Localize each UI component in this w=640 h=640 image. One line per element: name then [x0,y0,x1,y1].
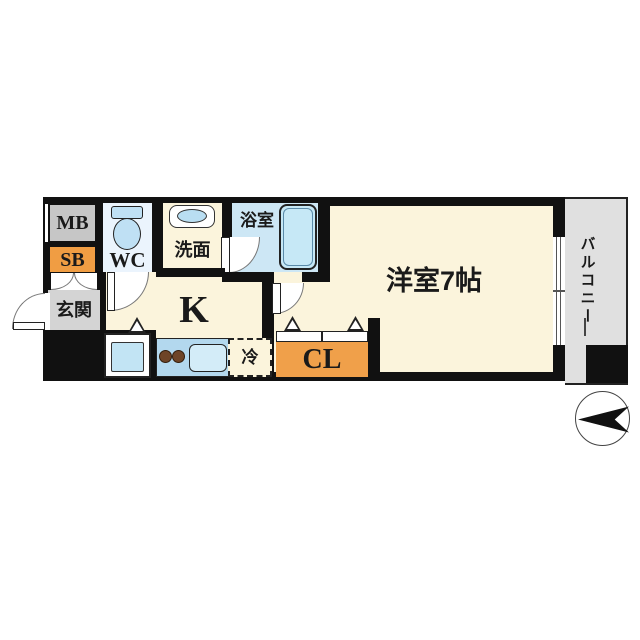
meter-box: MB [50,205,95,241]
door-swing-arc-icon [51,273,74,290]
wc-label-wrap: WC [103,249,152,271]
closet: CL [276,342,368,377]
bathtub-inner [283,208,313,266]
main-room-label-wrap: 洋室7帖 [374,264,494,298]
balcony-corner-block [586,345,628,383]
kitchen-room-doorway [274,272,302,282]
compass-arrow-icon [578,405,629,434]
sink-bowl-icon [177,209,207,223]
washroom-label-wrap: 洗面 [163,237,222,263]
closet-label: CL [303,346,342,374]
wc-door-leaf [107,272,115,311]
balcony-label-wrap: バルコニー [576,215,598,347]
fridge-label: 冷 [242,349,259,366]
entrance-genkan: 玄関 [48,290,100,330]
washroom-south-wall [156,268,225,277]
washroom-label: 洗面 [175,241,211,259]
balcony-label: バルコニー [580,236,595,326]
kitchen-counter [156,338,233,377]
balcony: バルコニー [565,197,628,385]
stove-burners-icon [172,350,185,363]
wc-label: WC [109,250,145,271]
window-mid-tick [553,290,565,292]
toilet-bowl-icon [113,218,141,250]
wc-room: WC [103,203,152,272]
room-door-leaf [272,283,281,314]
closet-east-wall [368,318,380,377]
shoe-box: SB [50,247,95,272]
meter-box-label: MB [56,213,88,233]
washer-pan [111,342,144,372]
main-room-label: 洋室7帖 [386,268,482,295]
pipe-space-lines [44,204,49,242]
compass [575,391,630,446]
fridge-space: 冷 [228,338,272,377]
floor-plan-page: MB SB 玄関 WC 洗面 浴室 [0,0,640,640]
bathtub-icon [279,204,317,270]
shoe-box-doors [51,273,97,290]
kitchen-label: K [179,291,209,329]
washroom: 洗面 [163,203,222,268]
kitchen-sink-icon [189,344,227,372]
entrance-door-leaf [13,322,45,330]
washer-space-icon [104,333,151,378]
shoe-box-label: SB [60,250,84,270]
kitchen-label-wrap: K [170,288,218,332]
balcony-window [553,237,565,345]
bathroom-label-wrap: 浴室 [234,209,280,231]
entrance-label: 玄関 [56,301,92,319]
closet-front-tick [321,331,323,342]
bathroom-label: 浴室 [240,212,274,229]
door-swing-arc-icon [74,273,97,290]
balcony-divider-tick [584,318,586,336]
stove-burners-icon [159,350,172,363]
